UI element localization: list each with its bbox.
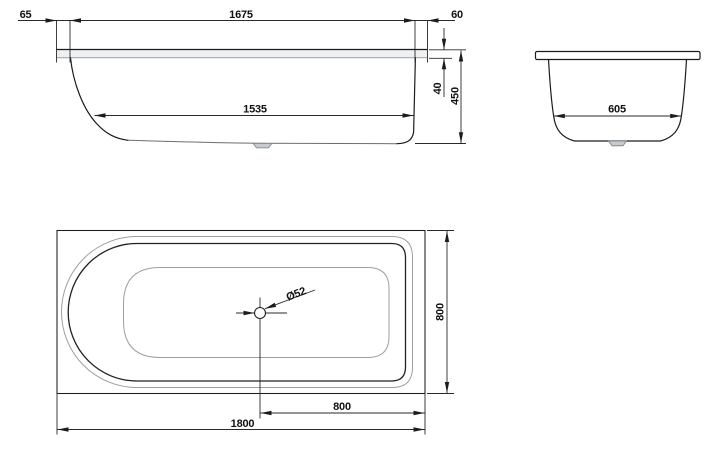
end-view-rim-flange — [536, 52, 701, 60]
dim-label-overall-length: 1800 — [231, 418, 255, 430]
top-view-rim-outer-edge — [62, 236, 413, 387]
dim-arrow — [244, 311, 255, 315]
dim-bottom-inner-width: 605 — [554, 104, 681, 119]
dim-label-overall-height: 450 — [450, 87, 462, 105]
side-view-drain-boss — [253, 143, 272, 148]
dim-label-left-overhang: 65 — [20, 9, 32, 21]
dim-arrow — [445, 382, 449, 393]
dim-arrow — [46, 18, 57, 22]
dim-heights: 40 450 — [415, 28, 466, 144]
side-view-foot-wall — [397, 58, 415, 144]
end-view-bowl-profile — [549, 60, 687, 142]
dim-label-right-overhang: 60 — [451, 9, 463, 21]
dim-chain-bottom: 800 1800 — [57, 394, 425, 435]
drain-circle — [255, 308, 266, 319]
dim-arrow — [428, 18, 439, 22]
dim-arrow — [414, 411, 425, 415]
dim-arrow — [70, 18, 81, 22]
side-view-rim-band — [57, 50, 428, 58]
dim-label-drain-offset: 800 — [333, 401, 351, 413]
dim-arrow — [459, 132, 463, 143]
technical-drawing-canvas: 65 1675 60 1535 40 450 — [0, 0, 720, 451]
side-view-head-wall — [71, 58, 129, 141]
dim-arrow — [58, 427, 69, 431]
dim-arrow — [670, 114, 681, 118]
dim-arrow — [403, 113, 414, 117]
dim-arrow — [442, 58, 446, 69]
top-view: Ø52 800 800 1800 — [57, 231, 454, 435]
dim-arrow — [442, 39, 446, 50]
end-view: 605 — [536, 52, 701, 146]
dim-label-rim-length: 1675 — [229, 9, 253, 21]
dim-arrow — [265, 303, 276, 309]
dim-arrow — [554, 114, 565, 118]
end-view-drain-boss — [609, 141, 627, 146]
dim-arrow — [404, 18, 415, 22]
bathtub-drawing: 65 1675 60 1535 40 450 — [0, 0, 720, 451]
dim-arrow — [95, 113, 106, 117]
dim-arrow — [459, 51, 463, 62]
drain-callout: Ø52 — [236, 285, 315, 418]
dim-label-drain-diameter: Ø52 — [285, 285, 308, 303]
top-view-rim-inner-edge — [68, 244, 405, 382]
dim-label-rim-height: 40 — [432, 83, 444, 95]
dim-label-overall-width: 800 — [435, 303, 447, 321]
dim-bottom-inner-length: 1535 — [95, 104, 414, 118]
dim-arrow — [261, 411, 272, 415]
top-view-outer-rect — [57, 231, 425, 394]
side-view: 65 1675 60 1535 40 450 — [18, 9, 466, 148]
dim-overall-width: 800 — [427, 231, 454, 394]
dim-arrow — [414, 427, 425, 431]
dim-label-bottom-length: 1535 — [243, 104, 267, 116]
dim-label-bottom-width: 605 — [608, 104, 626, 116]
dim-arrow — [445, 231, 449, 242]
